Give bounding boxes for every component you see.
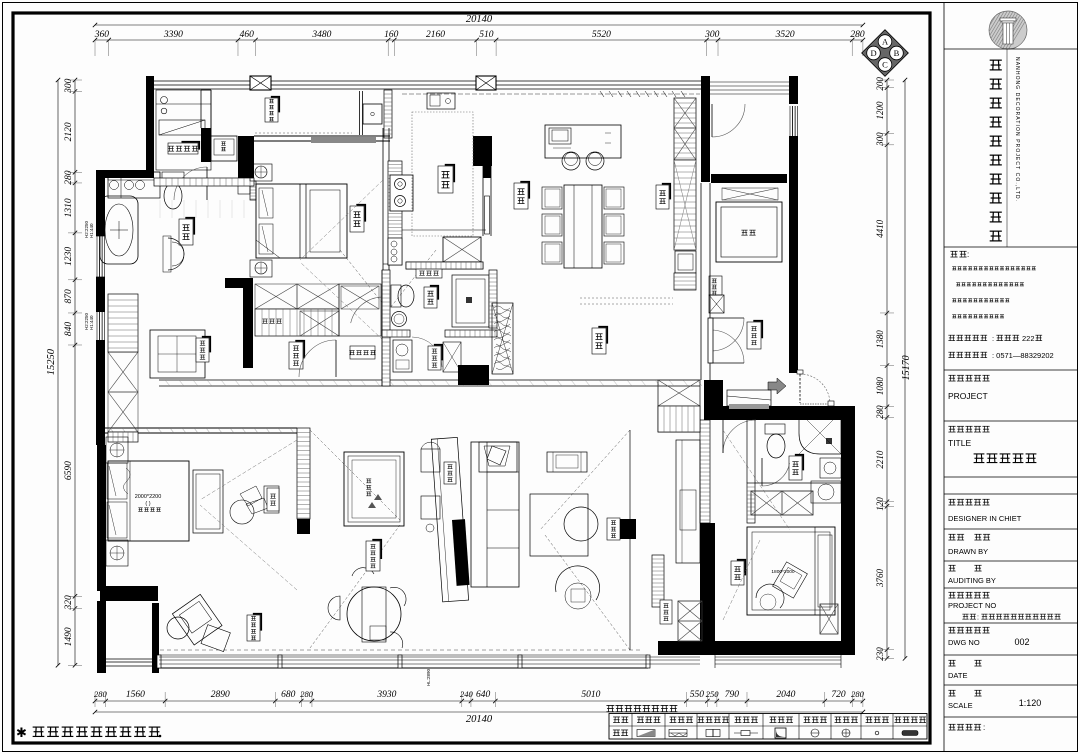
svg-text:1800*2000: 1800*2000 [771,569,795,575]
svg-text:2210: 2210 [875,450,885,469]
svg-text:230: 230 [875,647,885,661]
svg-text:DWG NO: DWG NO [948,638,980,647]
svg-text:20140: 20140 [466,714,493,725]
svg-text:1230: 1230 [64,247,74,266]
svg-text:2040: 2040 [776,690,795,700]
svg-text:3480: 3480 [311,30,331,40]
svg-text:280: 280 [64,170,74,185]
svg-text:1560: 1560 [126,690,145,700]
svg-text:DESIGNER IN CHIET: DESIGNER IN CHIET [948,514,1022,523]
svg-text:AUDITING BY: AUDITING BY [948,576,996,585]
svg-text:H1:440: H1:440 [89,223,94,238]
svg-text:680: 680 [281,690,296,700]
svg-text:790: 790 [725,690,740,700]
svg-text:840: 840 [64,322,74,337]
svg-text:300: 300 [64,78,74,94]
svg-text:20140: 20140 [466,14,493,25]
svg-text:240: 240 [460,689,474,699]
svg-text:550: 550 [690,690,705,700]
svg-text:NANHONG DECORATION PROJECT CO.: NANHONG DECORATION PROJECT CO.,LTD. [1014,57,1020,202]
svg-text:3930: 3930 [376,690,396,700]
svg-text:002: 002 [1014,637,1029,647]
svg-text:870: 870 [64,289,74,304]
svg-text:1310: 1310 [64,198,74,217]
svg-text:PROJECT: PROJECT [948,391,988,401]
svg-text:280: 280 [875,405,885,419]
svg-text:280: 280 [851,689,865,699]
svg-text:2890: 2890 [211,690,230,700]
svg-text:1:120: 1:120 [1019,698,1042,708]
svg-text:D: D [870,48,876,58]
svg-text:720: 720 [831,690,846,700]
svg-text::: : [977,615,979,622]
svg-text:TITLE: TITLE [948,438,971,448]
svg-text:✱: ✱ [16,725,27,740]
svg-text:160: 160 [384,30,399,40]
svg-text:280: 280 [300,689,314,699]
svg-text::: : [967,250,969,259]
svg-text:DATE: DATE [948,671,967,680]
svg-text:3390: 3390 [163,30,183,40]
svg-text:( ): ( ) [145,501,150,507]
svg-text:2000*2200: 2000*2200 [135,494,162,500]
svg-text:3520: 3520 [775,30,795,40]
svg-text:15250: 15250 [46,348,57,375]
svg-text:15170: 15170 [901,355,912,380]
svg-text:250: 250 [706,689,720,699]
svg-text:5520: 5520 [592,30,611,40]
svg-text:C: C [882,60,888,70]
svg-text:5010: 5010 [581,690,600,700]
svg-text:222: 222 [1022,334,1035,343]
svg-text:360: 360 [94,30,110,40]
svg-text:DRAWN BY: DRAWN BY [948,547,988,556]
svg-text:4410: 4410 [875,219,885,238]
svg-text:1380: 1380 [875,330,885,349]
svg-text:120: 120 [875,497,885,511]
svg-text:1490: 1490 [64,627,74,646]
svg-text:A: A [882,37,889,47]
svg-text:HL:2890: HL:2890 [426,668,431,686]
svg-text:SCALE: SCALE [948,701,973,710]
svg-text:1200: 1200 [875,101,885,120]
svg-text:640: 640 [476,690,491,700]
svg-text:6590: 6590 [64,461,74,480]
svg-text:300: 300 [875,132,885,147]
svg-text::: : [983,723,985,732]
svg-text::: : [992,334,994,343]
svg-text:2160: 2160 [426,30,445,40]
svg-text:: 0571—88329202: : 0571—88329202 [992,351,1054,360]
svg-text:280: 280 [850,30,865,40]
svg-text:2120: 2120 [64,122,74,141]
svg-text:320: 320 [64,595,74,611]
svg-text:200: 200 [875,77,885,91]
svg-text:460: 460 [240,30,255,40]
svg-text:H1:440: H1:440 [89,315,94,330]
svg-text:280: 280 [94,689,108,699]
svg-text:300: 300 [704,30,720,40]
svg-text:510: 510 [479,30,494,40]
svg-text:B: B [894,48,900,58]
svg-text:3760: 3760 [875,568,885,588]
svg-text:1080: 1080 [875,377,885,396]
svg-text:PROJECT NO: PROJECT NO [948,601,996,610]
